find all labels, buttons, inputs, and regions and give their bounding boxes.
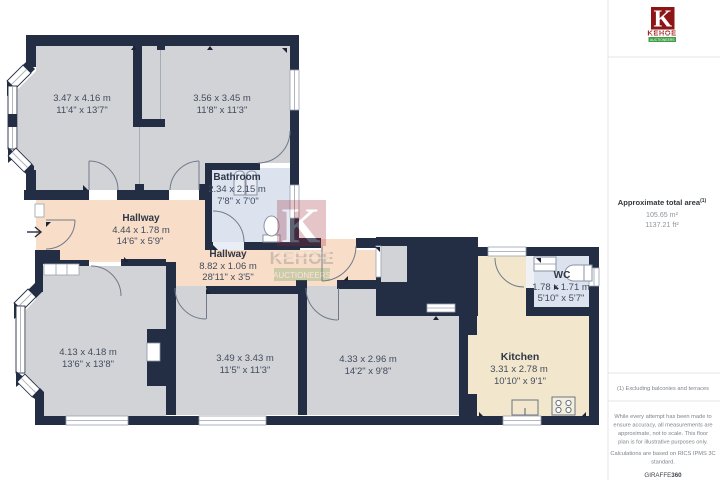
svg-text:standard.: standard. [651,460,675,466]
svg-text:Calculations are based on RICS: Calculations are based on RICS IPMS 3C [610,451,715,457]
svg-text:7'8" x 7'0": 7'8" x 7'0" [217,196,259,207]
svg-text:105.65 m²: 105.65 m² [646,211,679,219]
svg-text:11'4" x 13'7": 11'4" x 13'7" [56,105,107,116]
svg-text:3.31 x 2.78 m: 3.31 x 2.78 m [490,364,548,375]
svg-text:3.47 x 4.16 m: 3.47 x 4.16 m [53,93,111,104]
svg-text:While every attempt has been m: While every attempt has been made to [614,414,711,420]
svg-text:5'10" x 5'7": 5'10" x 5'7" [538,293,585,304]
svg-text:2.34 x 2.15 m: 2.34 x 2.15 m [208,184,266,195]
svg-text:3.49 x 3.43 m: 3.49 x 3.43 m [216,353,274,364]
svg-text:Bathroom: Bathroom [213,172,260,183]
svg-text:3.56 x 3.45 m: 3.56 x 3.45 m [193,93,251,104]
svg-text:GIRAFFE360: GIRAFFE360 [644,472,682,479]
svg-text:WC: WC [554,270,571,281]
svg-text:14'2" x 9'8": 14'2" x 9'8" [345,366,392,377]
svg-text:1137.21 ft²: 1137.21 ft² [645,221,679,229]
svg-text:10'10" x 9'1": 10'10" x 9'1" [494,376,546,387]
svg-text:11'5" x 11'3": 11'5" x 11'3" [220,365,271,376]
svg-text:AUCTIONEERS: AUCTIONEERS [273,271,331,280]
svg-text:ensure accuracy, all measureme: ensure accuracy, all measurements are [613,423,712,429]
svg-text:Hallway: Hallway [122,213,160,224]
svg-text:8.82 x 1.06 m: 8.82 x 1.06 m [199,261,257,272]
svg-text:1.78 x 1.71 m: 1.78 x 1.71 m [532,282,590,293]
svg-text:14'6" x 5'9": 14'6" x 5'9" [117,236,164,247]
svg-text:28'11" x 3'5": 28'11" x 3'5" [202,272,253,283]
svg-text:AUCTIONEERS: AUCTIONEERS [650,38,675,42]
svg-text:(1) Excluding balconies and te: (1) Excluding balconies and terraces [617,386,709,392]
svg-text:4.44 x 1.78 m: 4.44 x 1.78 m [112,225,170,236]
svg-text:4.13 x 4.18 m: 4.13 x 4.18 m [59,347,117,358]
svg-text:KEHOE: KEHOE [647,29,676,38]
svg-text:11'8" x 11'3": 11'8" x 11'3" [197,105,248,116]
svg-text:Approximate total area(1): Approximate total area(1) [618,198,707,207]
svg-text:4.33 x 2.96 m: 4.33 x 2.96 m [339,354,397,365]
svg-text:plan is for illustrative purpo: plan is for illustrative purposes only. [618,440,708,446]
svg-text:Kitchen: Kitchen [501,351,540,363]
svg-text:Hallway: Hallway [209,249,247,260]
svg-text:K: K [282,197,321,253]
svg-text:13'6" x 13'8": 13'6" x 13'8" [62,359,114,370]
svg-text:approximate, not to scale. Thi: approximate, not to scale. This floor [618,431,708,437]
